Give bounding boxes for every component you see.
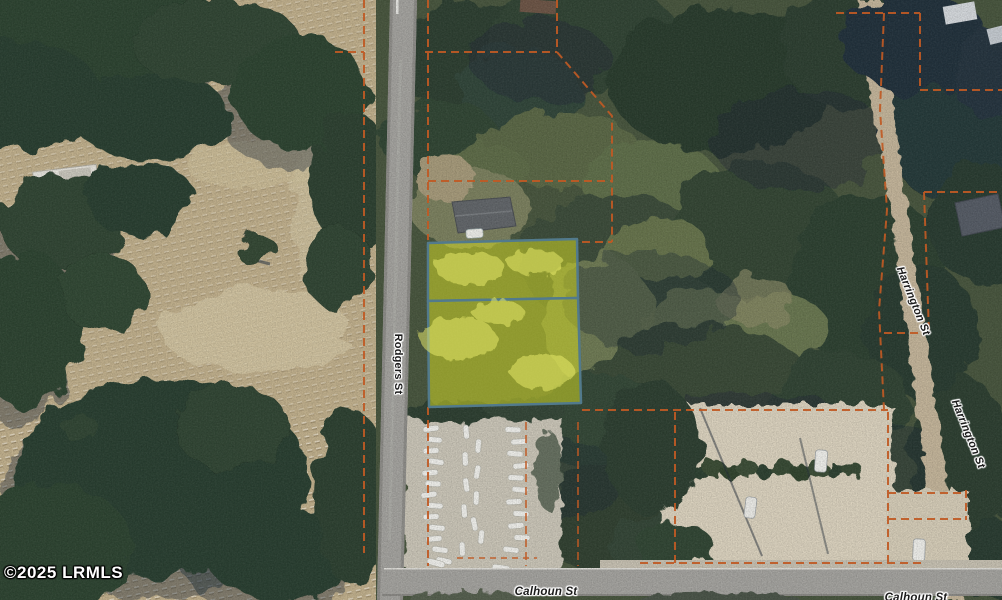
satellite-imagery [0,0,1002,600]
highlighted-parcel [420,239,581,407]
aerial-parcel-map[interactable]: Rodgers St Harrington St Harrington St C… [0,0,1002,600]
